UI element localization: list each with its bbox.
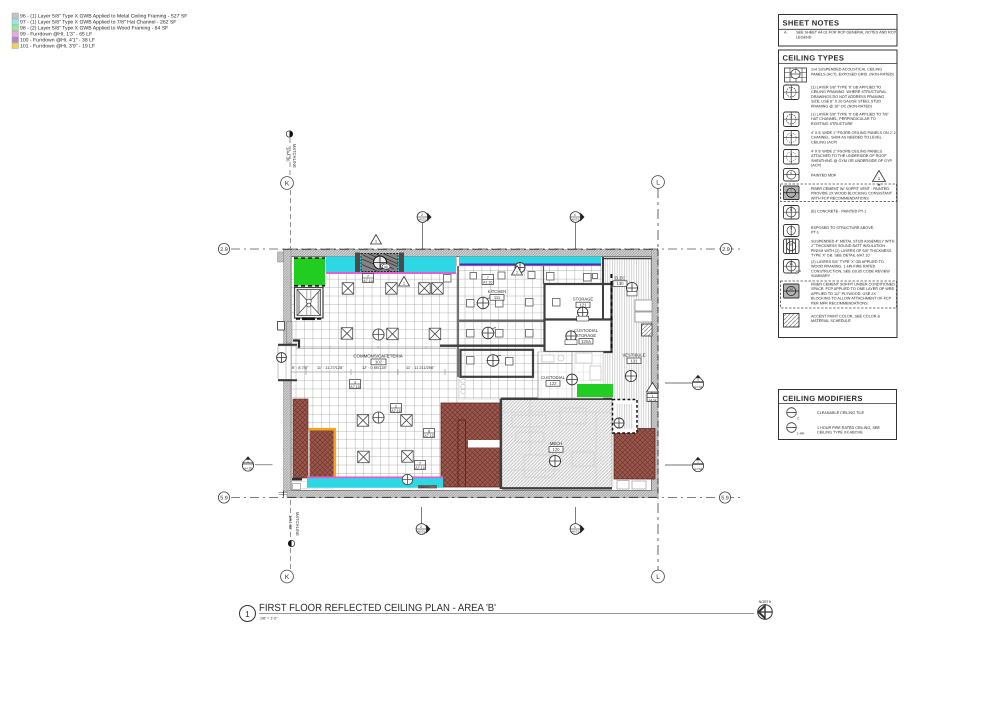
svg-text:A4.52: A4.52 bbox=[694, 467, 702, 471]
svg-text:MECH: MECH bbox=[550, 441, 562, 446]
svg-text:A6.01: A6.01 bbox=[571, 530, 579, 534]
svg-text:8: 8 bbox=[428, 429, 430, 433]
svg-text:1: 1 bbox=[697, 461, 699, 465]
svg-text:CHANNEL. SHIM AS NEEDED TO LE: CHANNEL. SHIM AS NEEDED TO LEVEL bbox=[811, 136, 882, 140]
svg-text:A7.10: A7.10 bbox=[391, 409, 400, 413]
svg-text:SPACE: FCP APPLIED TO ONE LAYE: SPACE: FCP APPLIED TO ONE LAYER OF WRB bbox=[811, 287, 895, 291]
svg-text:5.9: 5.9 bbox=[721, 496, 729, 502]
svg-text:7: 7 bbox=[790, 189, 792, 193]
svg-text:2: 2 bbox=[420, 525, 422, 529]
svg-text:1/A4.30: 1/A4.30 bbox=[286, 147, 291, 162]
svg-text:2.9: 2.9 bbox=[220, 247, 228, 253]
svg-text:COMMONS/CAFETERIA: COMMONS/CAFETERIA bbox=[353, 353, 402, 358]
svg-text:4: 4 bbox=[790, 134, 792, 138]
svg-text:A4.52: A4.52 bbox=[649, 398, 657, 402]
svg-text:(E) CONCRETE - PAINTED PT-1: (E) CONCRETE - PAINTED PT-1 bbox=[811, 210, 866, 214]
svg-text:SOFFIT: SOFFIT bbox=[419, 485, 429, 489]
svg-text:2: 2 bbox=[421, 213, 423, 217]
svg-text:ELEC: ELEC bbox=[615, 276, 626, 281]
svg-text:A6.01: A6.01 bbox=[417, 530, 425, 534]
svg-text:1 HOUR FIRE RATED CEILING, SEE: 1 HOUR FIRE RATED CEILING, SEE bbox=[817, 426, 880, 430]
svg-text:2x4 SUSPENDED ACOUSTICAL CEILI: 2x4 SUSPENDED ACOUSTICAL CEILING bbox=[811, 68, 882, 72]
svg-text:BLOCKING TO ALLOW ATTACHMENT O: BLOCKING TO ALLOW ATTACHMENT OF FCP bbox=[811, 297, 892, 301]
svg-text:SUSPENDED 4" METAL STUD ASSEMB: SUSPENDED 4" METAL STUD ASSEMBLY WITH bbox=[811, 240, 895, 244]
svg-text:PER MFR RECOMMENDATIONS: PER MFR RECOMMENDATIONS bbox=[811, 301, 868, 305]
svg-text:131: 131 bbox=[631, 358, 639, 363]
svg-text:1: 1 bbox=[574, 525, 576, 529]
svg-text:1: 1 bbox=[574, 213, 576, 217]
svg-text:CEILING (ACP): CEILING (ACP) bbox=[811, 140, 838, 144]
svg-text:6' - 8 7/8": 6' - 8 7/8" bbox=[292, 365, 309, 370]
svg-text:(2) LAYERS 5/8" TYPE 'X' GB AP: (2) LAYERS 5/8" TYPE 'X' GB APPLIED TO bbox=[811, 260, 884, 264]
svg-text:1: 1 bbox=[245, 609, 250, 619]
svg-text:2: 2 bbox=[790, 88, 792, 92]
svg-text:6: 6 bbox=[790, 171, 792, 175]
svg-text:PANELS (ACT), EXPOSED GRID. (: PANELS (ACT), EXPOSED GRID. (NON-RATED) bbox=[811, 72, 895, 76]
svg-text:11' - 11 27/128": 11' - 11 27/128" bbox=[317, 365, 344, 370]
svg-text:4' X 8' WIDE 2" FSORB CEILING: 4' X 8' WIDE 2" FSORB CEILING PANELS bbox=[811, 150, 883, 154]
svg-text:3: 3 bbox=[790, 115, 792, 119]
svg-text:122: 122 bbox=[550, 381, 558, 386]
svg-text:A7.10: A7.10 bbox=[415, 466, 424, 470]
svg-text:A6.01: A6.01 bbox=[418, 218, 426, 222]
svg-text:4' X 8' WIDE 1" FSORB CEILING: 4' X 8' WIDE 1" FSORB CEILING PANELS ON … bbox=[811, 131, 896, 135]
svg-text:68: 68 bbox=[384, 265, 388, 269]
svg-text:7: 7 bbox=[487, 276, 489, 280]
svg-text:CEILING MODIFIERS: CEILING MODIFIERS bbox=[783, 394, 863, 403]
svg-text:SUMMARY: SUMMARY bbox=[811, 274, 831, 278]
svg-text:FIBER CEMENT W/ SOFFIT VENT -: FIBER CEMENT W/ SOFFIT VENT - PAINTED. bbox=[811, 187, 890, 191]
svg-text:12' - 0 65/128": 12' - 0 65/128" bbox=[362, 365, 388, 370]
svg-text:2: 2 bbox=[395, 404, 397, 408]
svg-text:8: 8 bbox=[790, 208, 792, 212]
svg-text:FRAMING @ 16" OC (NON-RATED): FRAMING @ 16" OC (NON-RATED) bbox=[811, 104, 873, 108]
svg-text:1/A4.32: 1/A4.32 bbox=[288, 515, 293, 530]
svg-text:SHEATHING @ GYM OR UNDERSIDE O: SHEATHING @ GYM OR UNDERSIDE OF GYP bbox=[811, 159, 893, 163]
svg-text:1HR: 1HR bbox=[796, 269, 802, 273]
svg-text:VESTIBULE: VESTIBULE bbox=[622, 353, 645, 358]
svg-text:1-HR: 1-HR bbox=[797, 432, 805, 436]
svg-text:5: 5 bbox=[790, 153, 792, 157]
svg-text:STORAGE: STORAGE bbox=[576, 333, 597, 338]
svg-text:130: 130 bbox=[617, 281, 625, 286]
svg-text:A4.52: A4.52 bbox=[694, 385, 702, 389]
svg-text:11: 11 bbox=[789, 262, 793, 266]
svg-text:ACCENT PAINT COLOR, SEE COLOR: ACCENT PAINT COLOR, SEE COLOR & bbox=[811, 315, 880, 319]
svg-text:120A: 120A bbox=[581, 339, 591, 344]
svg-text:(1) LAYER 5/8" TYPE 'X' GB APP: (1) LAYER 5/8" TYPE 'X' GB APPLIED TO bbox=[811, 86, 881, 90]
svg-text:10: 10 bbox=[789, 242, 793, 246]
svg-text:1/8" = 1'-0": 1/8" = 1'-0" bbox=[260, 617, 278, 621]
svg-text:121: 121 bbox=[580, 303, 588, 308]
svg-text:(ACP): (ACP) bbox=[811, 164, 822, 168]
svg-text:A4.30: A4.30 bbox=[244, 467, 252, 471]
svg-text:KITCHEN: KITCHEN bbox=[488, 289, 506, 294]
svg-text:A.: A. bbox=[784, 31, 788, 35]
svg-text:K: K bbox=[285, 181, 290, 188]
svg-text:HAT CHANNEL, PERPINDICULAR TO: HAT CHANNEL, PERPINDICULAR TO bbox=[811, 117, 876, 121]
svg-text:L: L bbox=[656, 574, 660, 581]
svg-text:ATTACHED TO THE UNDERSIDE OF R: ATTACHED TO THE UNDERSIDE OF ROOF bbox=[811, 154, 887, 158]
svg-text:MATCHLINE: MATCHLINE bbox=[295, 512, 300, 536]
svg-text:2.9: 2.9 bbox=[722, 247, 730, 253]
svg-text:3: 3 bbox=[354, 380, 356, 384]
svg-text:101 - Furrdown @Ht. 3'9" - 19: 101 - Furrdown @Ht. 3'9" - 19 LF bbox=[20, 44, 95, 50]
svg-text:9: 9 bbox=[790, 227, 792, 231]
svg-text:APPLIED TO 1/2" PLYWOOD. USE 2: APPLIED TO 1/2" PLYWOOD. USE 2X bbox=[811, 292, 876, 296]
svg-text:11' - 11 211/256": 11' - 11 211/256" bbox=[406, 365, 435, 370]
svg-text:CEILING TYPES: CEILING TYPES bbox=[783, 54, 845, 63]
svg-text:WOOD FRAMING. 1-HR FIRE RATED: WOOD FRAMING. 1-HR FIRE RATED bbox=[811, 265, 876, 269]
svg-text:CEILING FRAMING. WHERE STRUCT: CEILING FRAMING. WHERE STRUCTURAL bbox=[811, 90, 887, 94]
svg-text:A6.01: A6.01 bbox=[571, 218, 579, 222]
svg-text:(1) LAYER 5/8" TYPE 'X' GB APP: (1) LAYER 5/8" TYPE 'X' GB APPLIED TO 7/… bbox=[811, 113, 889, 117]
svg-text:CUSTODIAL: CUSTODIAL bbox=[541, 375, 566, 380]
svg-text:1: 1 bbox=[247, 460, 249, 464]
svg-text:TYPE 'X' GB. SEE DETAIL 6/A7.: TYPE 'X' GB. SEE DETAIL 6/A7.10 bbox=[811, 254, 870, 258]
svg-text:A7.10: A7.10 bbox=[483, 281, 492, 285]
svg-text:L: L bbox=[656, 180, 660, 187]
svg-text:2" THICKNESS SOUND BATT INSULA: 2" THICKNESS SOUND BATT INSULATION. bbox=[811, 244, 886, 248]
svg-text:DRAWINGS DO NOT ADDRESS FRAMIN: DRAWINGS DO NOT ADDRESS FRAMING bbox=[811, 95, 884, 99]
svg-text:FIRST FLOOR REFLECTED CEILING: FIRST FLOOR REFLECTED CEILING PLAN - ARE… bbox=[259, 603, 496, 614]
svg-text:MATERIAL SCHEDULE: MATERIAL SCHEDULE bbox=[811, 319, 851, 323]
svg-text:2: 2 bbox=[697, 379, 699, 383]
svg-text:LEGEND: LEGEND bbox=[796, 35, 812, 39]
svg-text:SIZE, USE 6" X 20 GAUGE STEEL: SIZE, USE 6" X 20 GAUGE STEEL STUD bbox=[811, 100, 881, 104]
svg-text:A7.10: A7.10 bbox=[424, 434, 433, 438]
svg-text:CEILING TYPE XX ABOVE: CEILING TYPE XX ABOVE bbox=[817, 431, 863, 435]
svg-text:A7.10: A7.10 bbox=[363, 279, 372, 283]
svg-text:MATCHLINE: MATCHLINE bbox=[292, 144, 297, 168]
svg-text:102: 102 bbox=[375, 360, 383, 365]
svg-text:K: K bbox=[285, 574, 290, 581]
svg-text:120: 120 bbox=[553, 447, 561, 452]
svg-text:12: 12 bbox=[789, 287, 793, 291]
svg-text:SHEET NOTES: SHEET NOTES bbox=[783, 19, 840, 28]
svg-text:1: 1 bbox=[795, 70, 797, 74]
svg-text:7: 7 bbox=[419, 461, 421, 465]
svg-text:CONSTRUCTION, SEE G0.05 CODE R: CONSTRUCTION, SEE G0.05 CODE REVIEW bbox=[811, 269, 890, 273]
svg-text:7: 7 bbox=[367, 274, 369, 278]
svg-text:FIBER CEMENT SOFFIT UNDER COND: FIBER CEMENT SOFFIT UNDER CONDITIONED bbox=[811, 283, 895, 287]
svg-text:PAINTED MDF: PAINTED MDF bbox=[811, 174, 837, 178]
svg-text:SEE SHEET A4.01 FOR RCP GENERA: SEE SHEET A4.01 FOR RCP GENERAL NOTES AN… bbox=[796, 31, 896, 35]
svg-text:STORAGE: STORAGE bbox=[573, 297, 594, 302]
svg-text:PROVIDE 2X WOOD BLOCKING CONSI: PROVIDE 2X WOOD BLOCKING CONSISTANT bbox=[811, 192, 893, 196]
svg-text:EXISTING STRUCTURE: EXISTING STRUCTURE bbox=[811, 122, 853, 126]
svg-text:A7.10: A7.10 bbox=[350, 385, 359, 389]
svg-text:NORTH: NORTH bbox=[759, 600, 772, 604]
svg-text:CLEANABLE CEILING TILE: CLEANABLE CEILING TILE bbox=[817, 411, 865, 415]
svg-text:PT-1: PT-1 bbox=[811, 231, 819, 235]
svg-text:5.9: 5.9 bbox=[220, 496, 228, 502]
svg-text:FINISH WITH (2) LAYERS OF 5/8": FINISH WITH (2) LAYERS OF 5/8" THICKNESS bbox=[811, 249, 892, 253]
svg-text:EXPOSED TO STRUCTURE ABOVE,: EXPOSED TO STRUCTURE ABOVE, bbox=[811, 226, 874, 230]
svg-text:111: 111 bbox=[494, 295, 501, 300]
svg-text:WITH FCP RECOMMENDATIONS: WITH FCP RECOMMENDATIONS bbox=[811, 196, 869, 200]
